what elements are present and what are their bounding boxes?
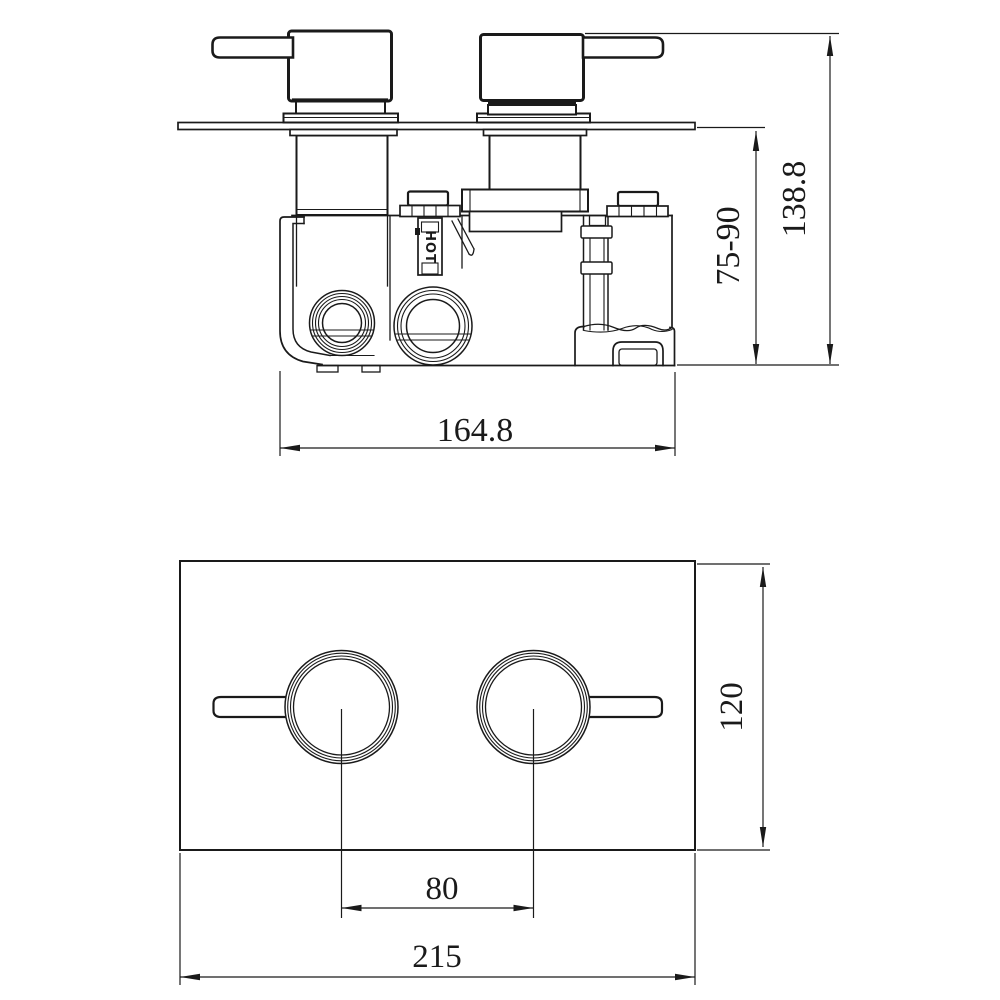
dim-total-depth-label: 138.8 [776,161,813,238]
right-collar [484,130,587,136]
inlet-port-small [310,291,375,356]
dim-plate-width-label: 215 [412,939,462,975]
outlet-port [613,342,663,366]
hot-label: HOT [422,230,437,264]
right-lever-front [579,697,662,717]
wall-plate-side [178,123,695,130]
dim-plate-height-label: 120 [714,682,750,732]
right-handle-lever [583,38,663,58]
left-cartridge [297,136,388,216]
shower-valve-technical-drawing: HOT [0,0,1000,1000]
fixing-column [581,216,612,331]
right-cartridge [462,136,588,232]
center-cap [408,192,448,206]
left-handle-lever [213,38,294,58]
dim-depth-range-label: 75-90 [710,206,747,285]
left-collar [290,130,397,136]
technical-drawing-canvas: HOT [0,0,1000,1000]
right-handle-body [481,35,584,101]
dim-handle-spacing-label: 80 [426,871,459,907]
thread-break-line [584,324,672,330]
foot-pad [362,366,380,373]
right-handle-side [477,35,663,136]
side-view: HOT [178,31,839,456]
front-view: 80 120 215 [180,561,770,985]
foot-pad [317,366,338,373]
left-handle-body [289,31,392,101]
left-handle-side [213,31,399,136]
inlet-port-large [394,287,472,365]
center-hex-nut [400,206,460,217]
right-neck [488,105,576,115]
left-lever-front [214,697,297,717]
left-neck [296,101,385,114]
right-port-cap [607,192,668,217]
dim-width-label: 164.8 [437,412,514,449]
